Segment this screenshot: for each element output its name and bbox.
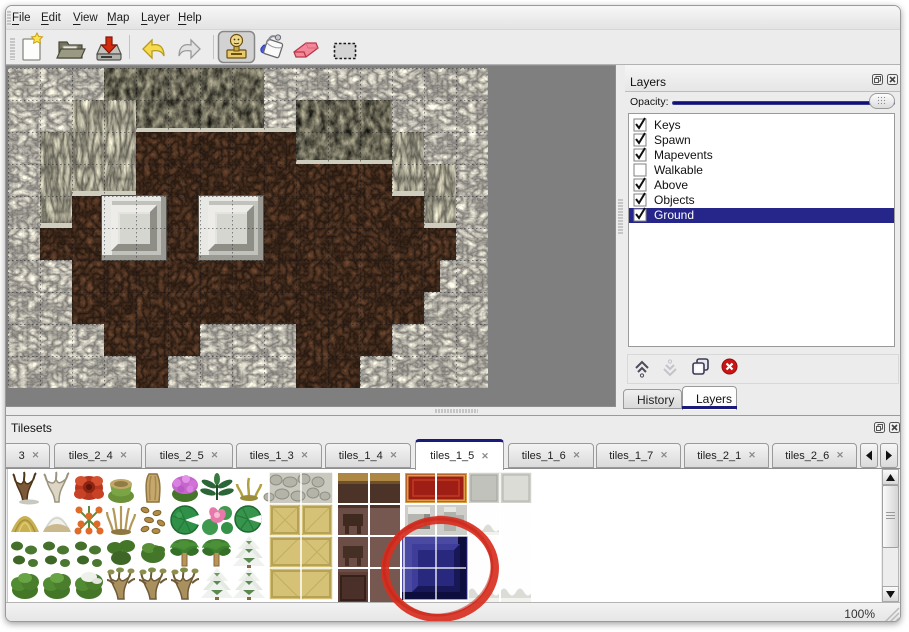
- svg-text:Walkable: Walkable: [654, 163, 703, 177]
- svg-text:Keys: Keys: [654, 118, 681, 132]
- svg-text:Mapevents: Mapevents: [654, 148, 713, 162]
- svg-text:Spawn: Spawn: [654, 133, 691, 147]
- svg-text:Above: Above: [654, 178, 688, 192]
- svg-text:Objects: Objects: [654, 193, 695, 207]
- svg-text:Ground: Ground: [654, 208, 694, 222]
